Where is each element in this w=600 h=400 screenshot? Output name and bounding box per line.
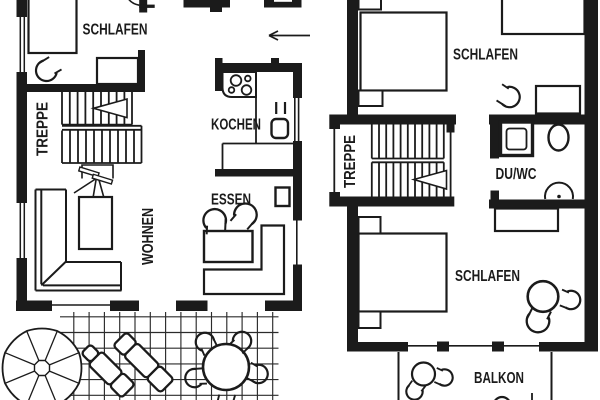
svg-text:BALKON: BALKON [474, 370, 524, 387]
svg-text:SCHLAFEN: SCHLAFEN [453, 47, 518, 64]
svg-text:TREPPE: TREPPE [35, 102, 52, 156]
svg-text:WOHNEN: WOHNEN [140, 208, 157, 265]
svg-text:ESSEN: ESSEN [211, 192, 251, 209]
svg-text:TREPPE: TREPPE [342, 135, 359, 188]
svg-text:KOCHEN: KOCHEN [211, 117, 261, 134]
svg-text:SCHLAFEN: SCHLAFEN [83, 22, 148, 39]
svg-text:SCHLAFEN: SCHLAFEN [455, 268, 520, 285]
svg-text:DU/WC: DU/WC [496, 166, 537, 183]
